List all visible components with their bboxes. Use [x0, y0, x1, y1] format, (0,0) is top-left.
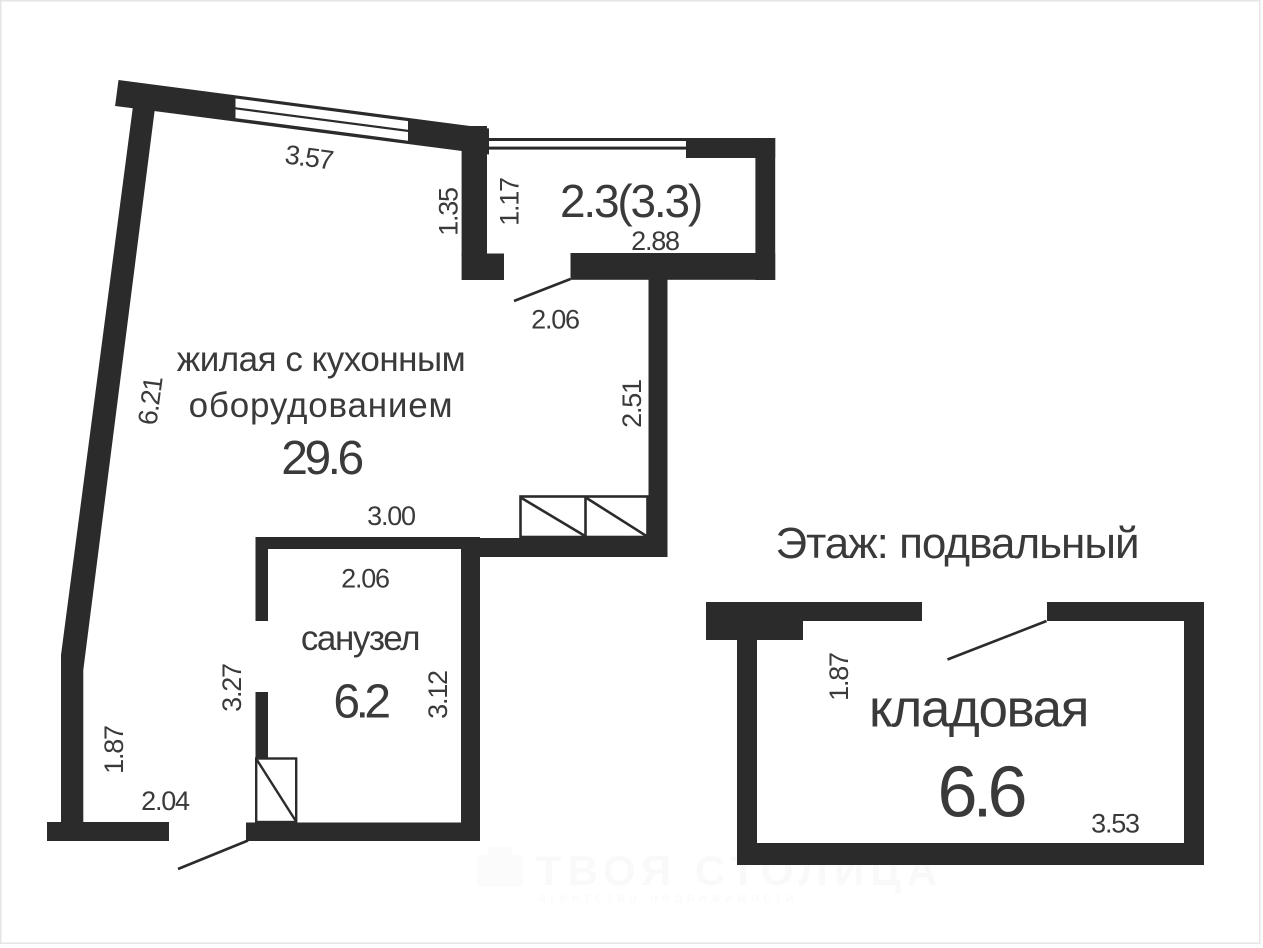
svg-text:кладовая: кладовая — [869, 680, 1088, 739]
svg-text:29.6: 29.6 — [281, 432, 362, 485]
svg-text:1.35: 1.35 — [434, 188, 464, 236]
svg-text:2.3(3.3): 2.3(3.3) — [560, 175, 701, 227]
svg-text:Этаж: подвальный: Этаж: подвальный — [775, 519, 1138, 568]
svg-text:1.17: 1.17 — [495, 178, 525, 226]
svg-text:жилая с кухонным: жилая с кухонным — [177, 340, 465, 379]
svg-text:6.6: 6.6 — [937, 753, 1024, 833]
svg-text:2.06: 2.06 — [531, 305, 579, 335]
svg-text:2.06: 2.06 — [341, 564, 389, 594]
svg-text:2.88: 2.88 — [631, 226, 679, 256]
svg-text:ТВОЯ СТОЛИЦА: ТВОЯ СТОЛИЦА — [536, 847, 943, 894]
svg-text:3.27: 3.27 — [217, 664, 247, 712]
svg-text:агентство недвижимости: агентство недвижимости — [538, 889, 798, 905]
svg-text:6.2: 6.2 — [333, 676, 389, 729]
svg-text:6.21: 6.21 — [132, 375, 168, 426]
svg-text:3.53: 3.53 — [1091, 809, 1139, 839]
svg-text:3.12: 3.12 — [423, 671, 453, 719]
svg-text:1.87: 1.87 — [99, 726, 129, 774]
svg-text:1.87: 1.87 — [824, 653, 854, 701]
svg-text:2.51: 2.51 — [617, 380, 647, 428]
svg-text:2.04: 2.04 — [141, 786, 190, 816]
svg-text:санузел: санузел — [301, 619, 419, 658]
svg-text:3.00: 3.00 — [367, 501, 415, 531]
svg-text:3.57: 3.57 — [283, 140, 334, 176]
svg-text:оборудованием: оборудованием — [189, 386, 454, 425]
